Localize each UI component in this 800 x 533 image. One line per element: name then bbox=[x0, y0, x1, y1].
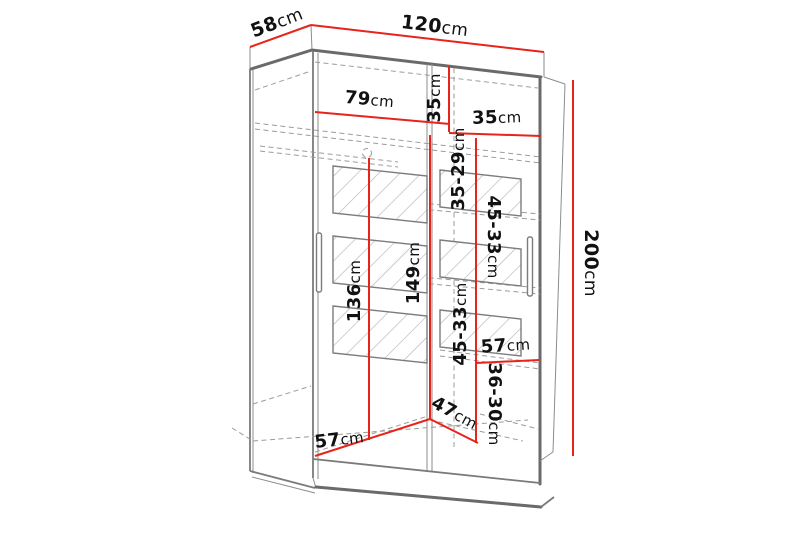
center-interior-height-label: 149cm bbox=[403, 242, 424, 304]
left-door-handle bbox=[317, 233, 322, 292]
top-panel bbox=[250, 25, 544, 77]
clothes-rail bbox=[260, 146, 398, 167]
right-door-handle bbox=[528, 237, 533, 296]
base-plinth bbox=[313, 459, 554, 507]
dimension-labels: 58cm 120cm 200cm 79cm 35cm 35cm 35-29cm … bbox=[248, 2, 602, 453]
mirror-right-middle bbox=[440, 240, 521, 286]
right-gap-1-label: 35-29cm bbox=[448, 127, 469, 210]
mirror-left-top bbox=[333, 166, 427, 223]
diagram-canvas: 58cm 120cm 200cm 79cm 35cm 35cm 35-29cm … bbox=[0, 0, 800, 533]
rail-hook bbox=[363, 149, 372, 158]
top-right-shelf-width-label: 35cm bbox=[472, 106, 522, 129]
left-section-width-label: 79cm bbox=[344, 87, 395, 112]
dimension-lines bbox=[250, 25, 573, 456]
bottom-left-width-label: 57cm bbox=[313, 426, 365, 453]
right-gap-2-label: 45-33cm bbox=[483, 195, 504, 278]
wardrobe-dimension-diagram: 58cm 120cm 200cm 79cm 35cm 35cm 35-29cm … bbox=[0, 0, 800, 533]
left-hanging-height-label: 136cm bbox=[344, 260, 365, 322]
height-label: 200cm bbox=[580, 229, 602, 297]
top-shelf-drop-label: 35cm bbox=[424, 73, 445, 123]
right-side-panel bbox=[540, 77, 565, 461]
right-gap-3-label: 45-33cm bbox=[450, 282, 471, 365]
bottom-compartment-depth-label: 47cm bbox=[428, 392, 482, 434]
right-gap-4-label: 36-30cm bbox=[484, 362, 505, 445]
right-shelf-width-label: 57cm bbox=[480, 333, 531, 357]
